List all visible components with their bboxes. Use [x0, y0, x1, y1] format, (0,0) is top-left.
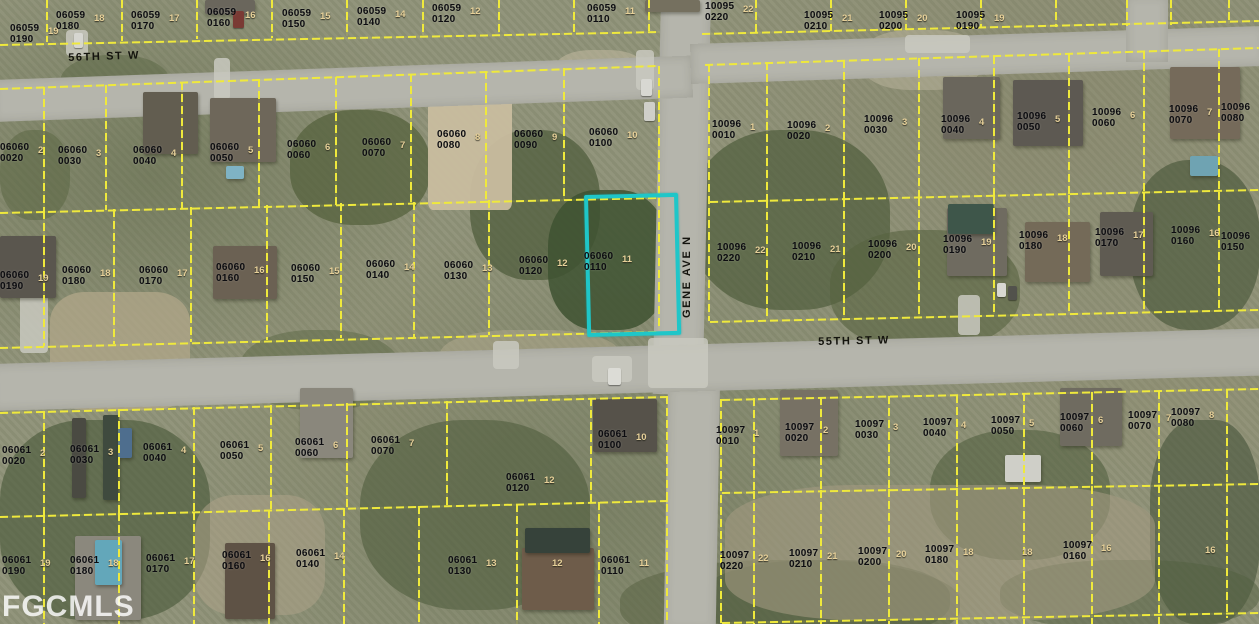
parcel-label: 10097 0200	[858, 547, 887, 568]
parcel-boundary-line	[193, 512, 195, 624]
parcel-label: 06061 0120	[506, 473, 535, 494]
parcel-label: 06060 0190	[0, 271, 29, 292]
building-roof	[525, 528, 590, 553]
building-roof	[645, 0, 700, 12]
lot-number: 12	[470, 6, 481, 17]
road-gene-ave-s	[664, 385, 720, 624]
lot-number: 5	[1029, 418, 1034, 429]
lot-number: 2	[38, 145, 43, 156]
lot-number: 22	[758, 553, 769, 564]
parcel-label: 06060 0090	[514, 130, 543, 151]
parcel-boundary-line	[755, 0, 757, 32]
lot-number: 17	[177, 268, 188, 279]
parcel-boundary-line	[753, 491, 755, 624]
lot-number: 16	[1205, 545, 1216, 556]
parcel-label: 06060 0060	[287, 140, 316, 161]
lot-number: 22	[743, 4, 754, 15]
lot-number: 7	[1207, 107, 1212, 118]
parcel-boundary-line	[121, 0, 123, 41]
parcel-label: 06060 0080	[437, 130, 466, 151]
lot-number: 2	[823, 425, 828, 436]
parcel-boundary-line	[563, 68, 565, 200]
parcel-boundary-line	[820, 397, 822, 490]
lot-number: 19	[38, 273, 49, 284]
lot-number: 11	[625, 6, 635, 17]
parcel-label: 06060 0100	[589, 128, 618, 149]
lot-number: 16	[245, 10, 256, 21]
parcel-label: 06061 0130	[448, 556, 477, 577]
lot-number: 20	[896, 549, 907, 560]
building-roof	[226, 166, 244, 179]
parcel-boundary-line	[268, 510, 270, 624]
parcel-boundary-line	[843, 60, 845, 199]
parcel-boundary-line	[918, 198, 920, 316]
lot-number: 14	[395, 9, 406, 20]
parcel-label: 10096 0080	[1221, 103, 1250, 124]
parcel-label: 10097 0050	[991, 416, 1020, 437]
parcel-boundary-line	[708, 64, 710, 321]
lot-number: 5	[1055, 114, 1060, 125]
lot-number: 18	[1022, 547, 1033, 558]
parcel-label: 06060 0070	[362, 138, 391, 159]
lot-number: 13	[486, 558, 497, 569]
parcel-boundary-line	[1158, 391, 1160, 485]
parcel-label: 06061 0070	[371, 436, 400, 457]
lot-number: 18	[108, 558, 119, 569]
parcel-label: 06061 0050	[220, 441, 249, 462]
vehicle	[1008, 286, 1017, 300]
lot-number: 6	[333, 440, 338, 451]
parcel-label: 06060 0030	[58, 146, 87, 167]
lot-number: 6	[1130, 110, 1135, 121]
parcel-boundary-line	[1228, 0, 1230, 24]
lot-number: 18	[1057, 233, 1068, 244]
parcel-boundary-line	[590, 398, 592, 503]
parcel-boundary-line	[340, 203, 342, 338]
lot-number: 19	[981, 237, 992, 248]
parcel-label: 10096 0220	[717, 243, 746, 264]
parcel-boundary-line	[118, 409, 120, 513]
parcel-boundary-line	[666, 396, 668, 624]
lot-number: 1	[754, 428, 759, 439]
parcel-label: 06059 0190	[10, 24, 39, 45]
lot-number: 3	[893, 422, 898, 433]
lot-number: 6	[1098, 415, 1103, 426]
parcel-label: 10096 0060	[1092, 108, 1121, 129]
parcel-label: 06060 0040	[133, 146, 162, 167]
parcel-label: 06060 0140	[366, 260, 395, 281]
vehicle	[74, 33, 83, 48]
driveway	[648, 338, 708, 388]
lot-number: 18	[100, 268, 111, 279]
parcel-boundary-line	[485, 71, 487, 202]
lot-number: 11	[622, 254, 632, 265]
lot-number: 16	[1209, 228, 1220, 239]
parcel-label: 10096 0180	[1019, 231, 1048, 252]
parcel-boundary-line	[422, 0, 424, 35]
watermark: FGCMLS	[2, 592, 135, 622]
lot-number: 18	[94, 13, 105, 24]
parcel-boundary-line	[43, 411, 45, 515]
vehicle	[608, 368, 621, 385]
lot-number: 17	[1133, 230, 1144, 241]
parcel-label: 06061 0170	[146, 554, 175, 575]
parcel-boundary-line	[766, 200, 768, 319]
parcel-boundary-line	[196, 0, 198, 39]
parcel-label: 10097 0080	[1171, 408, 1200, 429]
parcel-label: 10097 0160	[1063, 541, 1092, 562]
lot-number: 18	[963, 547, 974, 558]
parcel-boundary-line	[1226, 484, 1228, 618]
lot-number: 12	[552, 558, 563, 569]
parcel-boundary-line	[956, 395, 958, 488]
parcel-boundary-line	[1218, 192, 1220, 310]
lot-number: 3	[108, 447, 113, 458]
parcel-boundary-line	[1143, 51, 1145, 193]
parcel-label: 10097 0180	[925, 545, 954, 566]
lot-number: 4	[961, 420, 966, 431]
parcel-label: 10097 0010	[716, 426, 745, 447]
driveway	[905, 35, 970, 53]
driveway	[493, 341, 519, 369]
parcel-boundary-line	[843, 199, 845, 317]
parcel-boundary-line	[105, 85, 107, 210]
vehicle	[997, 283, 1006, 297]
parcel-label: 06061 0180	[70, 556, 99, 577]
parcel-label: 06061 0140	[296, 549, 325, 570]
parcel-label: 06059 0170	[131, 11, 160, 32]
lot-number: 10	[636, 432, 647, 443]
lot-number: 4	[181, 445, 186, 456]
lot-number: 16	[1101, 543, 1112, 554]
lot-number: 16	[260, 553, 271, 564]
lot-number: 20	[906, 242, 917, 253]
map-stage[interactable]: FGCMLS 06059 01901906059 01801806059 017…	[0, 0, 1259, 624]
parcel-boundary-line	[516, 504, 518, 624]
parcel-label: 10095 0210	[804, 11, 833, 32]
parcel-label: 10096 0210	[792, 242, 821, 263]
parcel-boundary-line	[190, 207, 192, 342]
lot-number: 2	[40, 448, 45, 459]
parcel-label: 06059 0110	[587, 4, 616, 25]
parcel-boundary-line	[1068, 54, 1070, 195]
parcel-label: 10096 0150	[1221, 232, 1250, 253]
parcel-label: 10096 0050	[1017, 112, 1046, 133]
parcel-label: 06060 0120	[519, 256, 548, 277]
building-roof	[948, 204, 994, 234]
parcel-boundary-line	[266, 205, 268, 340]
parcel-label: 06059 0160	[207, 8, 236, 29]
parcel-boundary-line	[418, 506, 420, 624]
parcel-label: 10096 0070	[1169, 105, 1198, 126]
parcel-label: 06060 0180	[62, 266, 91, 287]
parcel-boundary-line	[648, 0, 650, 31]
parcel-boundary-line	[1023, 393, 1025, 487]
parcel-boundary-line	[335, 77, 337, 205]
parcel-label: 10097 0030	[855, 420, 884, 441]
lot-number: 1	[750, 122, 755, 133]
parcel-label: 10095 0200	[879, 11, 908, 32]
driveway	[214, 58, 230, 100]
parcel-boundary-line	[888, 489, 890, 624]
parcel-label: 10096 0010	[712, 120, 741, 141]
lot-number: 9	[552, 132, 557, 143]
vehicle	[644, 102, 655, 121]
lot-number: 20	[917, 13, 928, 24]
lot-number: 21	[827, 551, 838, 562]
lot-number: 12	[557, 258, 568, 269]
parcel-label: 06061 0160	[222, 551, 251, 572]
lot-number: 17	[184, 556, 195, 567]
lot-number: 15	[320, 11, 331, 22]
lot-number: 6	[325, 142, 330, 153]
parcel-label: 06061 0030	[70, 445, 99, 466]
parcel-label: 06059 0180	[56, 11, 85, 32]
street-label: 55TH ST W	[818, 334, 890, 348]
parcel-label: 06061 0100	[598, 430, 627, 451]
lot-number: 8	[475, 132, 480, 143]
lot-number: 21	[830, 244, 841, 255]
parcel-boundary-line	[918, 58, 920, 198]
lot-number: 19	[994, 13, 1005, 24]
lot-number: 2	[825, 123, 830, 134]
parcel-label: 10097 0210	[789, 549, 818, 570]
parcel-boundary-line	[113, 209, 115, 344]
parcel-boundary-line	[820, 490, 822, 624]
street-label: GENE AVE N	[681, 235, 693, 318]
parcel-boundary-line	[43, 87, 45, 211]
parcel-label: 06061 0060	[295, 438, 324, 459]
parcel-label: 10096 0040	[941, 115, 970, 136]
parcel-label: 10097 0020	[785, 423, 814, 444]
parcel-label: 10096 0020	[787, 121, 816, 142]
lot-number: 8	[1209, 410, 1214, 421]
terrain-patch	[290, 110, 430, 225]
parcel-boundary-line	[270, 405, 272, 510]
parcel-label: 06061 0020	[2, 446, 31, 467]
parcel-boundary-line	[598, 502, 600, 624]
parcel-boundary-line	[343, 508, 345, 624]
parcel-label: 10097 0070	[1128, 411, 1157, 432]
parcel-label: 06060 0110	[584, 252, 613, 273]
lot-number: 13	[482, 263, 493, 274]
parcel-label: 06060 0020	[0, 143, 29, 164]
parcel-label: 10095 0190	[956, 11, 985, 32]
lot-number: 3	[96, 148, 101, 159]
parcel-boundary-line	[1126, 0, 1128, 26]
parcel-label: 10097 0220	[720, 551, 749, 572]
lot-number: 10	[627, 130, 638, 141]
parcel-boundary-line	[410, 74, 412, 204]
vehicle	[641, 79, 652, 96]
lot-number: 21	[842, 13, 853, 24]
parcel-label: 10096 0030	[864, 115, 893, 136]
parcel-boundary-line	[1170, 0, 1172, 25]
lot-number: 5	[248, 145, 253, 156]
parcel-boundary-line	[1091, 392, 1093, 486]
lot-number: 14	[334, 551, 345, 562]
parcel-boundary-line	[1226, 390, 1228, 484]
lot-number: 15	[329, 266, 340, 277]
lot-number: 5	[258, 443, 263, 454]
lot-number: 4	[979, 117, 984, 128]
parcel-boundary-line	[1068, 195, 1070, 313]
lot-number: 22	[755, 245, 766, 256]
lot-number: 19	[40, 558, 51, 569]
parcel-label: 10096 0170	[1095, 228, 1124, 249]
building-roof	[1190, 156, 1218, 176]
parcel-boundary-line	[0, 31, 660, 46]
lot-number: 11	[639, 558, 649, 569]
building-roof	[118, 428, 132, 458]
parcel-label: 06060 0150	[291, 264, 320, 285]
parcel-label: 06059 0120	[432, 4, 461, 25]
lot-number: 17	[169, 13, 180, 24]
parcel-boundary-line	[753, 398, 755, 491]
parcel-label: 06060 0170	[139, 266, 168, 287]
parcel-boundary-line	[446, 401, 448, 506]
lot-number: 3	[902, 117, 907, 128]
parcel-label: 10096 0200	[868, 240, 897, 261]
parcel-boundary-line	[1218, 49, 1220, 192]
parcel-boundary-line	[993, 56, 995, 196]
lot-number: 12	[544, 475, 555, 486]
parcel-label: 06060 0050	[210, 143, 239, 164]
lot-number: 16	[254, 265, 265, 276]
parcel-label: 06061 0040	[143, 443, 172, 464]
parcel-boundary-line	[573, 0, 575, 32]
parcel-label: 10097 0060	[1060, 413, 1089, 434]
lot-number: 4	[171, 148, 176, 159]
parcel-boundary-line	[271, 0, 273, 38]
parcel-label: 10096 0190	[943, 235, 972, 256]
parcel-label: 06060 0160	[216, 263, 245, 284]
parcel-label: 06061 0190	[2, 556, 31, 577]
parcel-label: 06059 0150	[282, 9, 311, 30]
parcel-boundary-line	[993, 196, 995, 314]
parcel-boundary-line	[766, 62, 768, 200]
parcel-boundary-line	[1055, 0, 1057, 27]
lot-number: 7	[400, 140, 405, 151]
parcel-label: 10096 0160	[1171, 226, 1200, 247]
parcel-boundary-line	[498, 0, 500, 33]
parcel-boundary-line	[346, 0, 348, 36]
parcel-boundary-line	[258, 79, 260, 207]
street-label: 56TH ST W	[68, 49, 140, 64]
parcel-boundary-line	[1158, 485, 1160, 624]
parcel-boundary-line	[956, 488, 958, 624]
parcel-boundary-line	[181, 82, 183, 209]
parcel-label: 10097 0040	[923, 418, 952, 439]
parcel-label: 06059 0140	[357, 7, 386, 28]
parcel-label: 06061 0110	[601, 556, 630, 577]
parcel-boundary-line	[1143, 193, 1145, 312]
parcel-label: 06060 0130	[444, 261, 473, 282]
lot-number: 14	[404, 262, 415, 273]
parcel-label: 10095 0220	[705, 2, 734, 23]
parcel-boundary-line	[346, 403, 348, 508]
lot-number: 7	[409, 438, 414, 449]
parcel-boundary-line	[888, 396, 890, 489]
parcel-boundary-line	[193, 407, 195, 512]
